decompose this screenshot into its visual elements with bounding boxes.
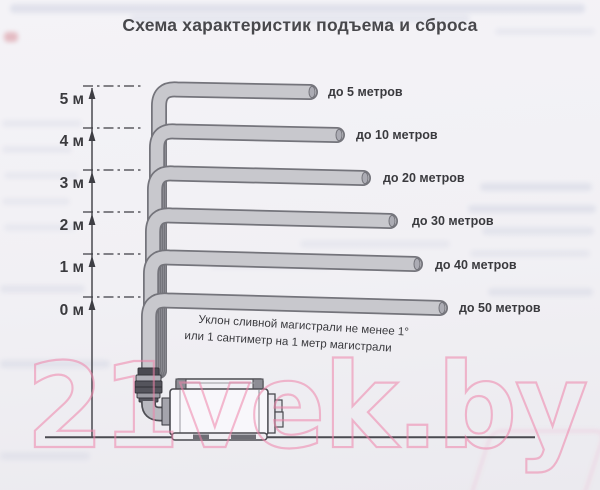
distance-label-30m: до 30 метров — [412, 214, 494, 228]
manual-page: Схема характеристик подъема и сброса 5 м… — [0, 0, 600, 490]
diagram-canvas — [0, 0, 600, 490]
height-label-5m: 5 м — [52, 91, 84, 109]
height-label-3m: 3 м — [52, 175, 84, 193]
distance-label-20m: до 20 метров — [383, 171, 465, 185]
page-title: Схема характеристик подъема и сброса — [0, 15, 600, 36]
pipe-coupling — [135, 368, 162, 402]
pump-outlet-lower — [275, 412, 283, 427]
pump-side-panel — [268, 394, 275, 433]
height-label-1m: 1 м — [52, 259, 84, 277]
pipe-elbow — [149, 398, 172, 425]
distance-label-50m: до 50 метров — [459, 301, 541, 315]
pump-body — [170, 389, 268, 435]
height-label-2m: 2 м — [52, 217, 84, 235]
distance-label-40m: до 40 метров — [435, 258, 517, 272]
pump-outlet-upper — [275, 400, 282, 412]
height-label-4m: 4 м — [52, 133, 84, 151]
pump-unit — [170, 379, 283, 440]
measurement-axis — [89, 88, 96, 437]
distance-label-5m: до 5 метров — [328, 85, 403, 99]
distance-label-10m: до 10 метров — [356, 128, 438, 142]
height-label-0m: 0 м — [52, 302, 84, 320]
